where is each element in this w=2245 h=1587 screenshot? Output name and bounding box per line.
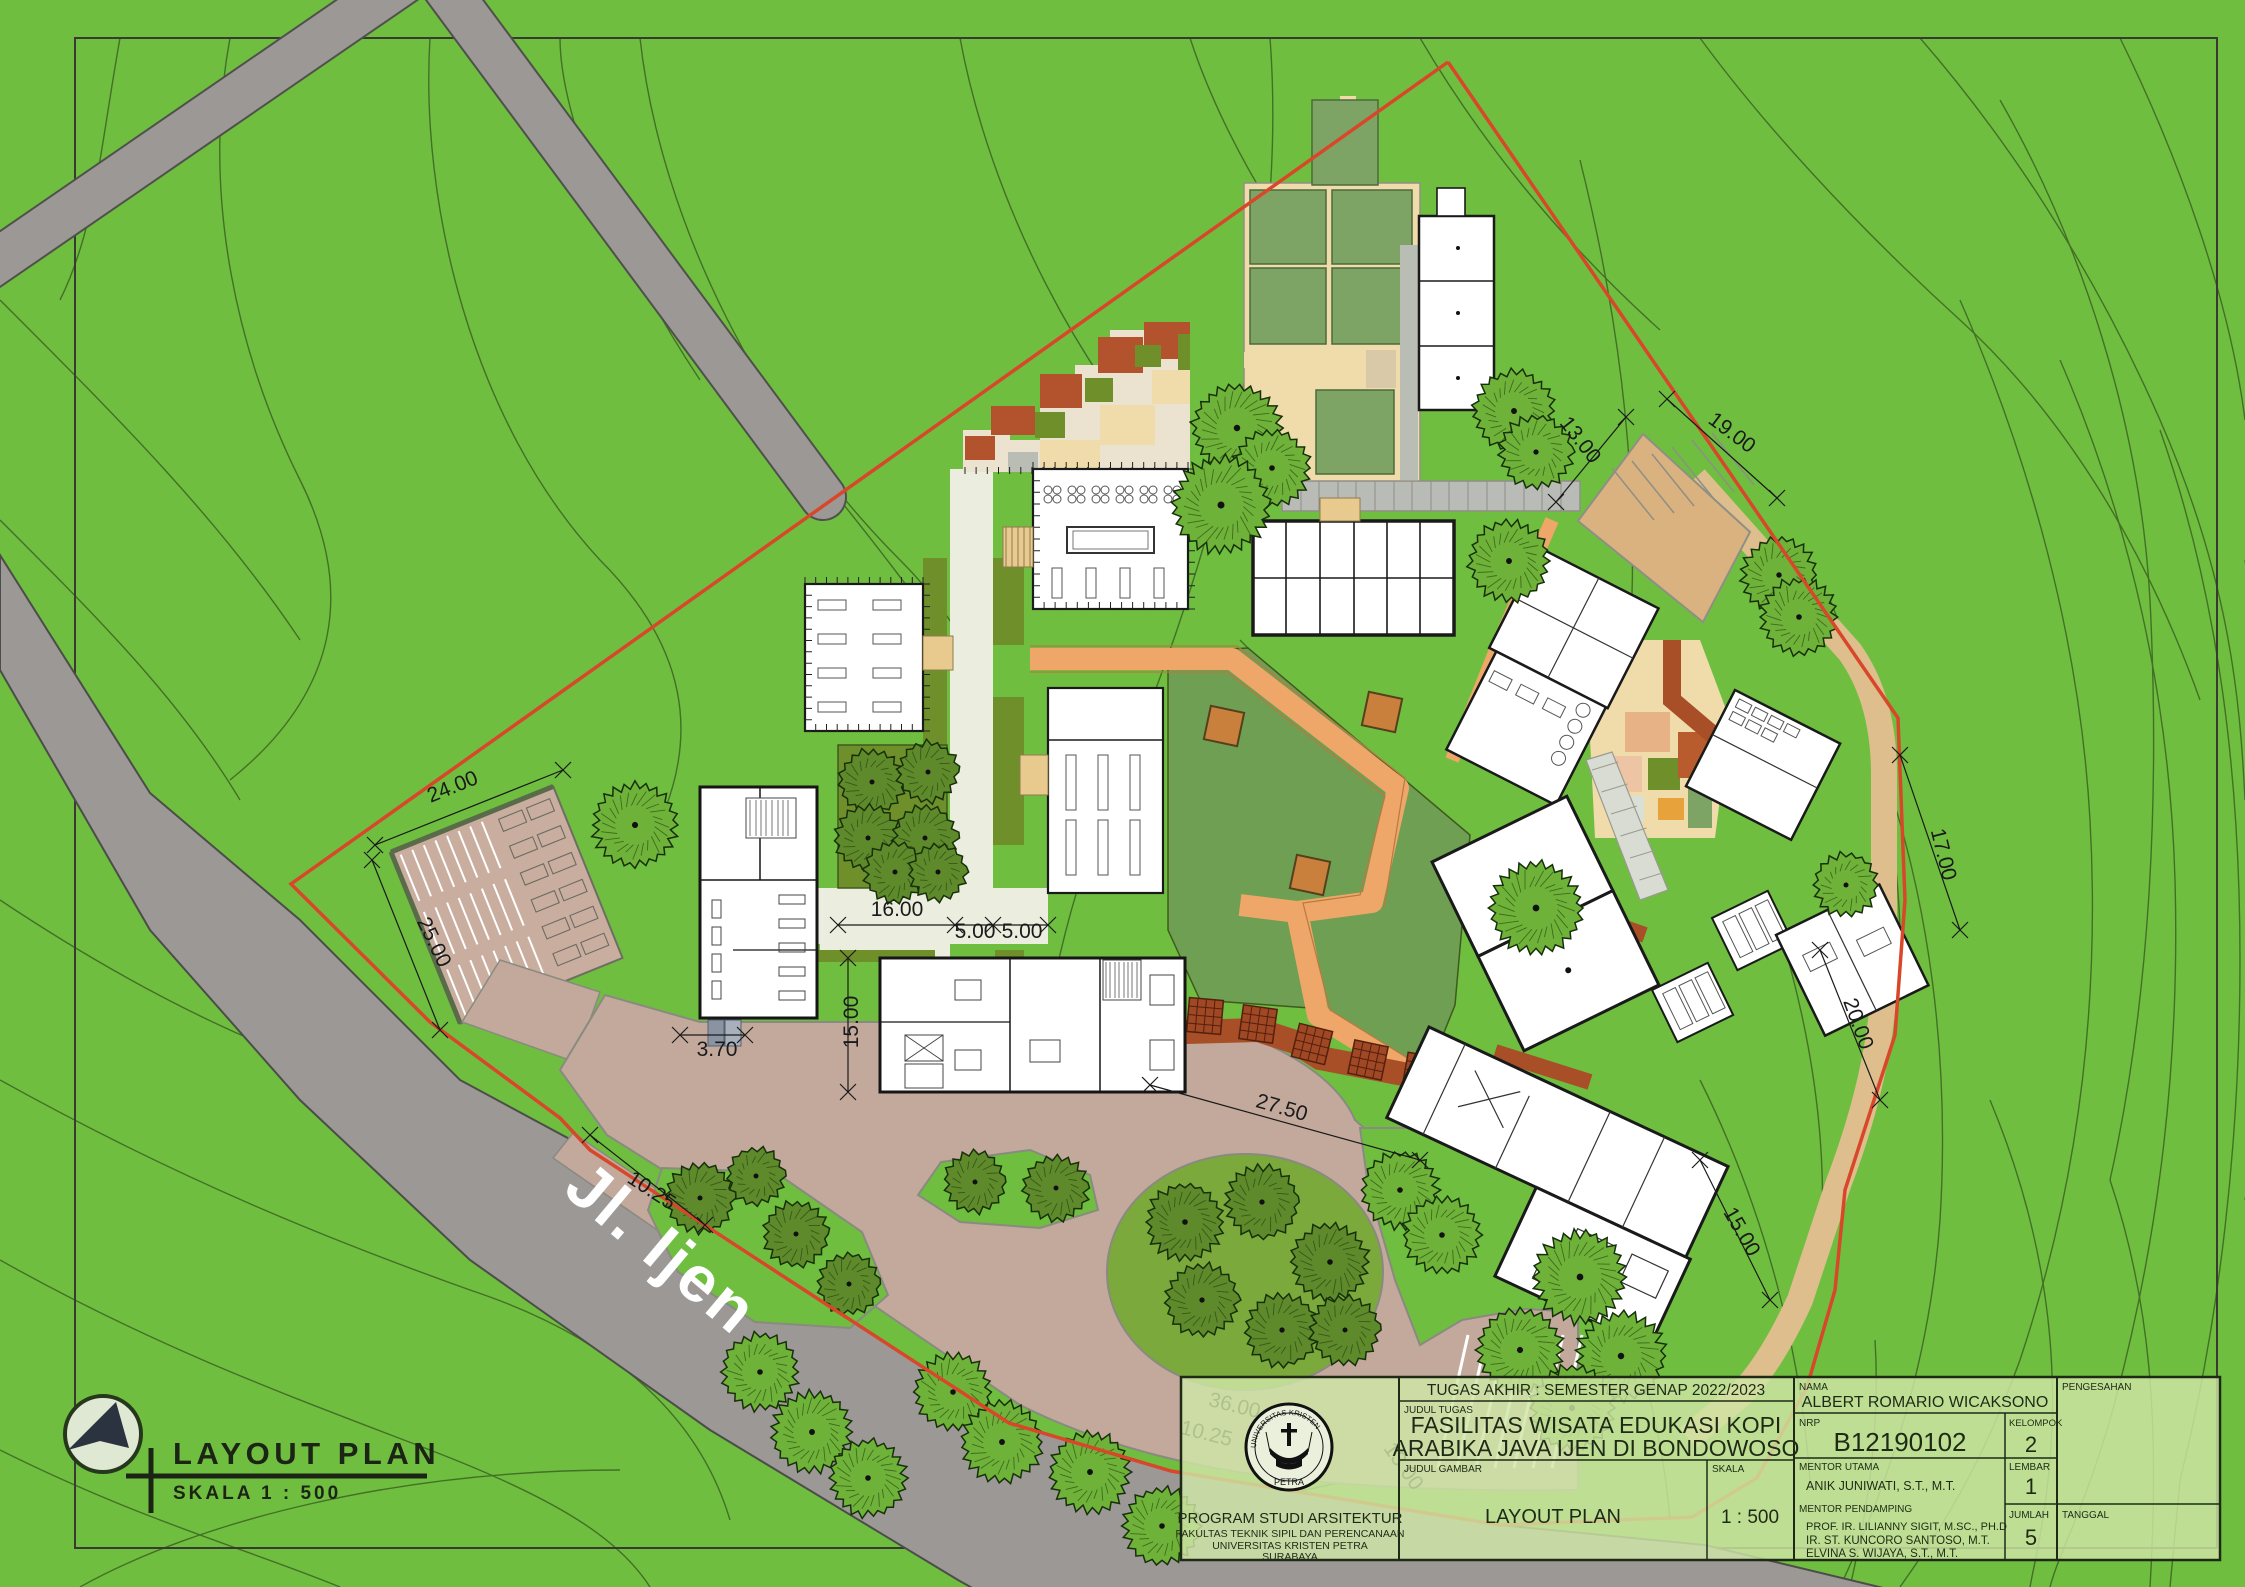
svg-text:ELVINA S. WIJAYA, S.T., M.T.: ELVINA S. WIJAYA, S.T., M.T. (1806, 1548, 1958, 1560)
svg-text:PENGESAHAN: PENGESAHAN (2062, 1382, 2131, 1393)
svg-text:NAMA: NAMA (1799, 1382, 1828, 1393)
svg-text:SKALA: SKALA (1712, 1464, 1745, 1475)
svg-text:JUDUL GAMBAR: JUDUL GAMBAR (1404, 1464, 1482, 1475)
svg-text:PROGRAM STUDI ARSITEKTUR: PROGRAM STUDI ARSITEKTUR (1177, 1510, 1402, 1527)
svg-text:1: 1 (2025, 1474, 2037, 1499)
svg-text:SKALA 1 : 500: SKALA 1 : 500 (173, 1483, 341, 1504)
svg-text:KELOMPOK: KELOMPOK (2009, 1418, 2063, 1429)
svg-text:LEMBAR: LEMBAR (2009, 1462, 2050, 1473)
svg-text:FAKULTAS TEKNIK SIPIL DAN PERE: FAKULTAS TEKNIK SIPIL DAN PERENCANAAN (1176, 1528, 1405, 1540)
svg-text:NRP: NRP (1799, 1418, 1820, 1429)
svg-text:PETRA: PETRA (1274, 1477, 1304, 1487)
svg-text:MENTOR PENDAMPING: MENTOR PENDAMPING (1799, 1504, 1912, 1515)
svg-text:15.00: 15.00 (840, 996, 863, 1049)
svg-text:PROF. IR. LILIANNY SIGIT, M.SC: PROF. IR. LILIANNY SIGIT, M.SC., PH.D (1806, 1521, 2007, 1533)
svg-text:ANIK JUNIWATI, S.T., M.T.: ANIK JUNIWATI, S.T., M.T. (1806, 1479, 1955, 1493)
svg-text:TANGGAL: TANGGAL (2062, 1510, 2109, 1521)
svg-text:MENTOR UTAMA: MENTOR UTAMA (1799, 1462, 1880, 1473)
svg-text:JUMLAH: JUMLAH (2009, 1510, 2049, 1521)
svg-text:B12190102: B12190102 (1833, 1427, 1966, 1457)
svg-text:2: 2 (2025, 1432, 2037, 1457)
svg-text:5.00: 5.00 (1002, 920, 1043, 943)
svg-text:LAYOUT PLAN: LAYOUT PLAN (1485, 1506, 1621, 1528)
svg-text:SURABAYA: SURABAYA (1262, 1551, 1318, 1563)
svg-text:LAYOUT PLAN: LAYOUT PLAN (173, 1436, 440, 1471)
svg-text:IR. ST. KUNCORO SANTOSO, M.T.: IR. ST. KUNCORO SANTOSO, M.T. (1806, 1535, 1990, 1547)
svg-text:3.70: 3.70 (697, 1038, 738, 1061)
svg-text:ARABIKA JAVA IJEN DI BONDOWOSO: ARABIKA JAVA IJEN DI BONDOWOSO (1393, 1435, 1800, 1461)
svg-text:1 : 500: 1 : 500 (1721, 1507, 1779, 1528)
svg-text:16.00: 16.00 (871, 898, 924, 921)
svg-text:TUGAS AKHIR : SEMESTER GENAP 2: TUGAS AKHIR : SEMESTER GENAP 2022/2023 (1427, 1382, 1765, 1399)
svg-text:ALBERT ROMARIO WICAKSONO: ALBERT ROMARIO WICAKSONO (1802, 1394, 2049, 1411)
svg-text:5: 5 (2025, 1525, 2037, 1550)
